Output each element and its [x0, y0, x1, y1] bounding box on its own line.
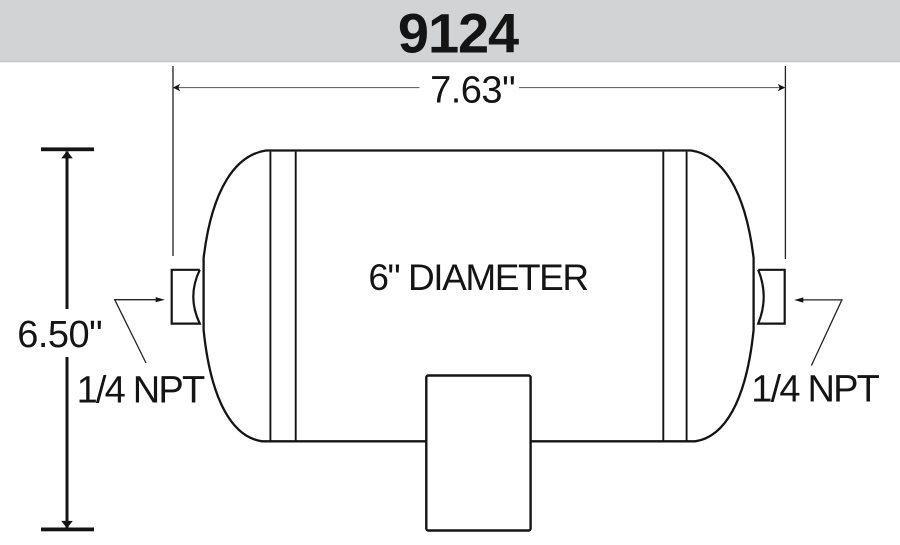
- svg-text:1/4 NPT: 1/4 NPT: [77, 370, 205, 412]
- svg-text:1/4 NPT: 1/4 NPT: [751, 368, 879, 410]
- svg-text:6.50": 6.50": [17, 314, 102, 356]
- svg-text:7.63": 7.63": [430, 70, 515, 112]
- svg-text:9124: 9124: [398, 1, 519, 64]
- svg-text:6" DIAMETER: 6" DIAMETER: [368, 257, 587, 298]
